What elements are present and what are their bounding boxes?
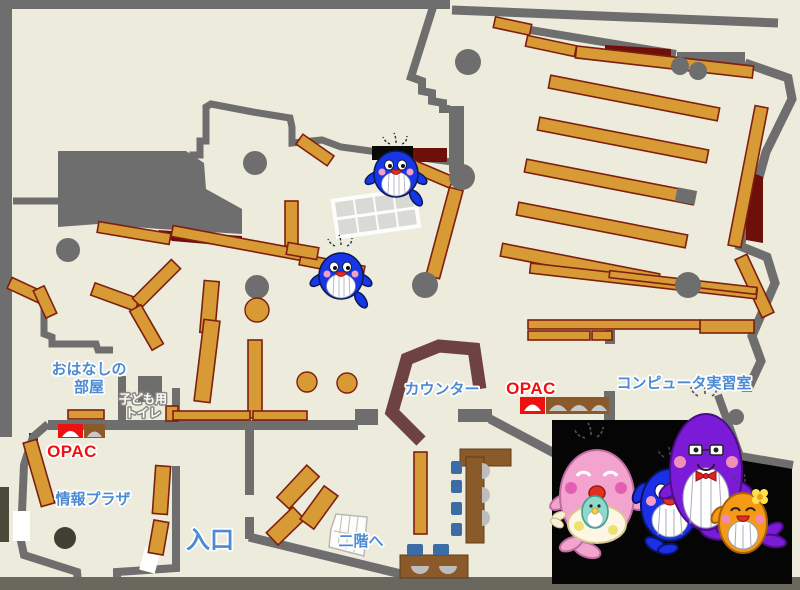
story-room-label-line2: 部屋 — [74, 378, 104, 396]
door-gap — [13, 511, 30, 541]
opac-left-label: OPAC — [47, 442, 97, 461]
story-room-label-line1: おはなしの — [51, 361, 126, 378]
second-floor-label: 二階へ — [338, 532, 383, 550]
kids-toilet-label-line2: トイレ — [125, 406, 161, 420]
entrance-label: 入口 — [186, 527, 234, 554]
computer-room-label: コンピュータ実習室 — [616, 374, 751, 392]
library-floor-map: おはなしの 部屋 子ども用 トイレ OPAC 情報プラザ 入口 二階へ カウンタ… — [0, 0, 800, 590]
floor-map-svg: おはなしの 部屋 子ども用 トイレ OPAC 情報プラザ 入口 二階へ カウンタ… — [0, 0, 800, 590]
kids-toilet-label-line1: 子ども用 — [119, 392, 167, 406]
opac-station-left — [58, 424, 105, 438]
opac-center-label: OPAC — [506, 379, 556, 398]
baby-whale-mascot — [582, 496, 608, 528]
info-plaza-label: 情報プラザ — [55, 490, 130, 508]
dark-red-alcove — [413, 148, 447, 162]
counter-label: カウンター — [404, 381, 479, 398]
opac-station-center — [520, 397, 609, 414]
